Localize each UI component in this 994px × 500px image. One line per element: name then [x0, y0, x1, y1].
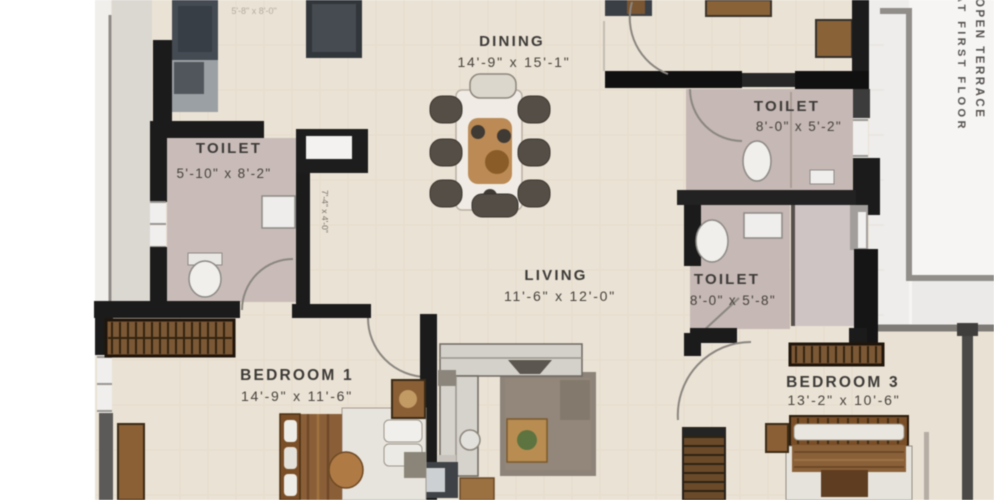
svg-text:LIVING: LIVING — [524, 267, 587, 284]
svg-text:8'-0" x 5'-2": 8'-0" x 5'-2" — [756, 119, 842, 134]
svg-text:AT FIRST FLOOR: AT FIRST FLOOR — [955, 0, 967, 132]
svg-text:TOILET: TOILET — [754, 98, 820, 115]
svg-text:5'-8" x 8'-0": 5'-8" x 8'-0" — [231, 6, 276, 16]
svg-text:BEDROOM 1: BEDROOM 1 — [240, 367, 354, 384]
svg-text:14'-9" x 11'-6": 14'-9" x 11'-6" — [241, 388, 353, 404]
svg-text:11'-6" x 12'-0": 11'-6" x 12'-0" — [504, 288, 616, 304]
svg-text:13'-2" x 10'-6": 13'-2" x 10'-6" — [787, 392, 900, 408]
svg-text:DINING: DINING — [479, 33, 545, 50]
svg-text:5'-10" x 8'-2": 5'-10" x 8'-2" — [176, 166, 271, 181]
svg-text:TOILET: TOILET — [196, 140, 262, 157]
svg-text:14'-9" x 15'-1": 14'-9" x 15'-1" — [457, 54, 570, 70]
svg-text:OPEN TERRACE: OPEN TERRACE — [973, 0, 985, 119]
svg-text:8'-0" x 5'-8": 8'-0" x 5'-8" — [690, 293, 776, 308]
svg-text:TOILET: TOILET — [694, 271, 760, 288]
svg-text:7'-4" x 4'-0": 7'-4" x 4'-0" — [320, 190, 330, 233]
svg-text:BEDROOM 3: BEDROOM 3 — [786, 374, 900, 391]
